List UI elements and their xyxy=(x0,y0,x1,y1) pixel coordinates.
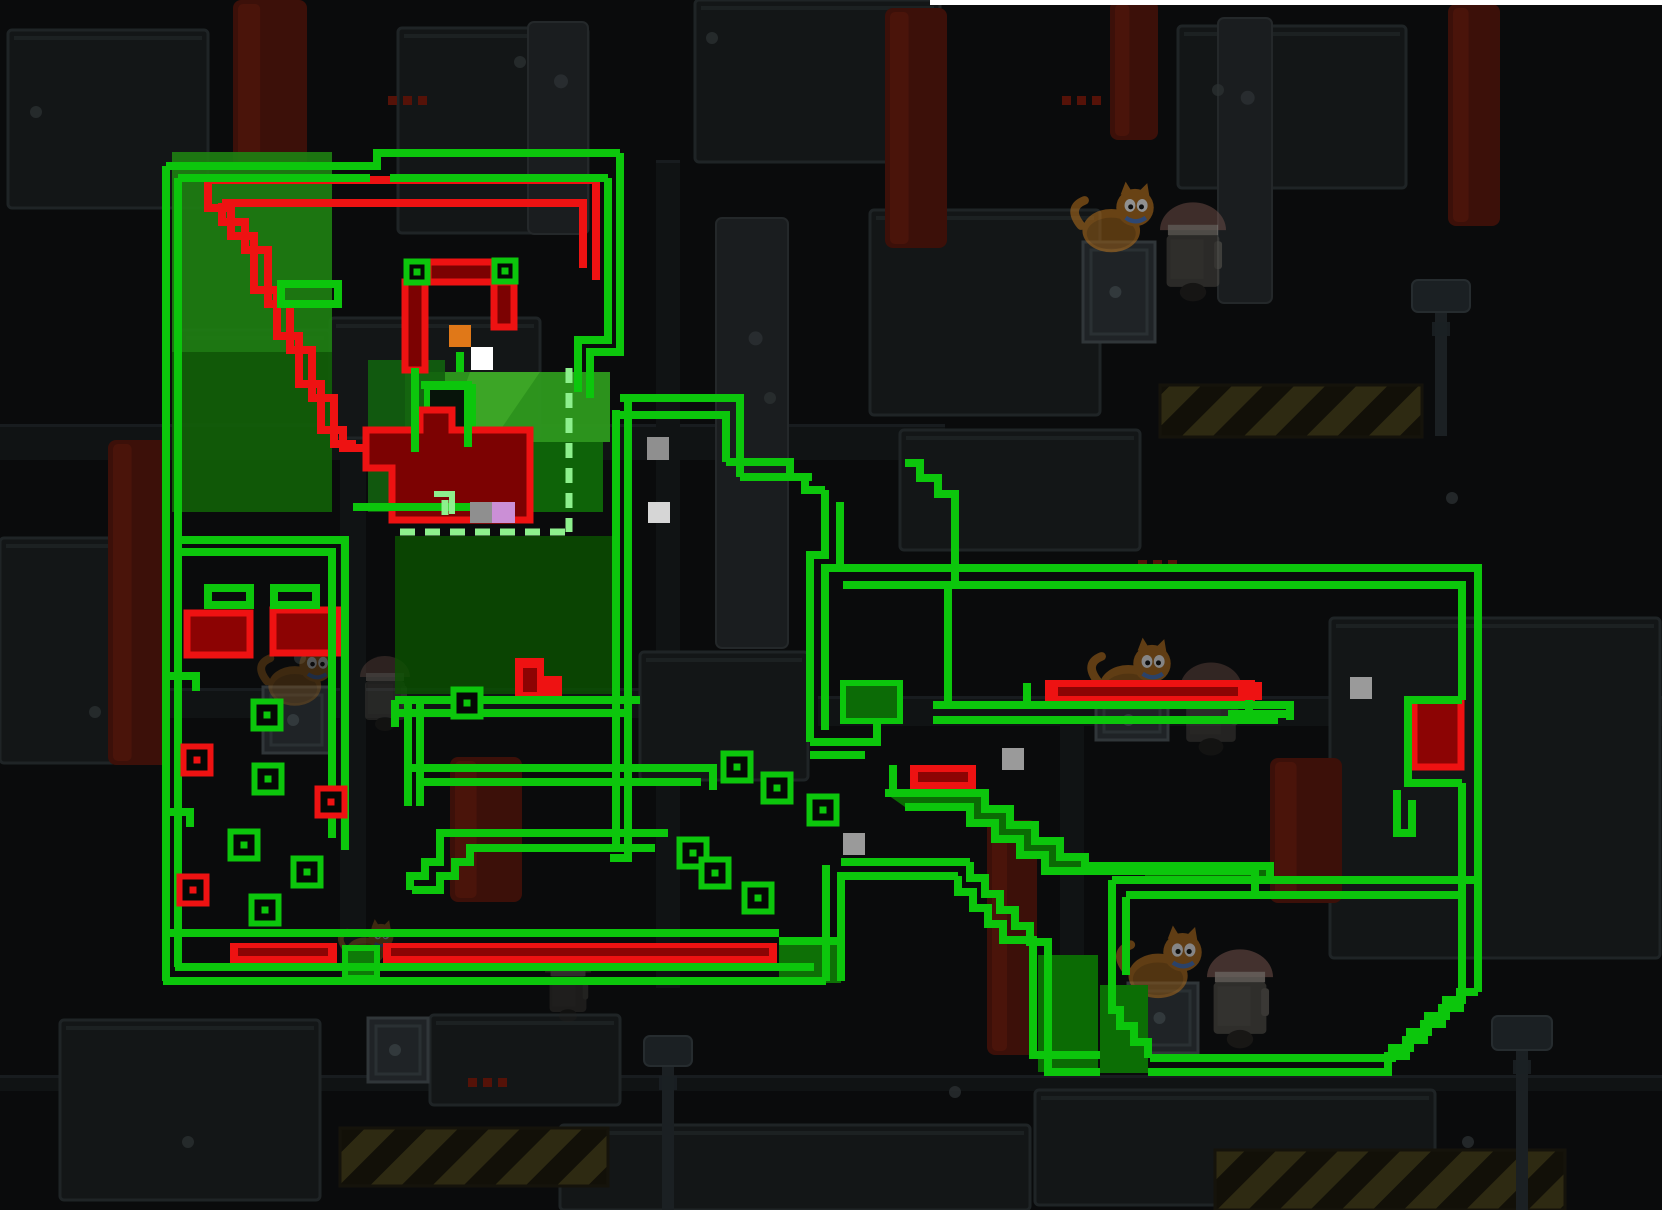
wall-panel-body xyxy=(60,1020,320,1200)
map-node[interactable] xyxy=(702,860,729,887)
map-node[interactable] xyxy=(294,859,321,886)
cat-pupil-right xyxy=(1156,660,1161,665)
map-node-dot-icon xyxy=(712,870,719,877)
map-node[interactable] xyxy=(180,877,207,904)
cat-pupil-left xyxy=(1128,204,1133,209)
wall-panel-highlight xyxy=(66,1026,314,1030)
red-pillar-highlight xyxy=(1115,4,1129,136)
wall-panel-highlight xyxy=(1184,32,1400,36)
marker-gray-block-5[interactable] xyxy=(1350,677,1372,699)
rivet-icon xyxy=(182,1136,194,1148)
wall-panel-highlight xyxy=(1041,1096,1429,1100)
lamp-post-collar xyxy=(1432,322,1450,336)
status-led-icon xyxy=(498,1078,507,1087)
red-pillar xyxy=(885,8,947,248)
robot-wheel xyxy=(1227,1030,1253,1048)
rivet-icon xyxy=(1462,1136,1474,1148)
status-led-icon xyxy=(483,1078,492,1087)
status-led-icon xyxy=(388,96,397,105)
screen-edge-strip xyxy=(930,0,1662,5)
rivet-icon xyxy=(764,392,776,404)
map-node[interactable] xyxy=(254,702,281,729)
map-node[interactable] xyxy=(764,775,791,802)
cat-pupil-right xyxy=(320,662,325,667)
marker-gray-block-3[interactable] xyxy=(843,833,865,855)
girder-beam-body xyxy=(656,160,680,988)
dark-pillar-rivet-icon xyxy=(749,331,763,345)
hazard-box-room-1 xyxy=(187,613,250,655)
rivet-icon xyxy=(1212,84,1224,96)
cat-pupil-right xyxy=(1139,204,1144,209)
red-pillar xyxy=(233,0,307,168)
marker-gray-block-1[interactable] xyxy=(647,437,669,460)
hazard-stripes xyxy=(1160,385,1422,437)
girder-beam-highlight xyxy=(656,160,680,163)
hazard-stripes-body xyxy=(340,1128,608,1186)
lamp-post-head xyxy=(1412,280,1470,312)
map-node-dot-icon xyxy=(190,887,197,894)
safe-box xyxy=(1083,242,1155,342)
map-node-dot-icon xyxy=(262,907,269,914)
robot-wheel xyxy=(1199,738,1224,755)
map-node[interactable] xyxy=(724,754,751,781)
marker-lightgray-block[interactable] xyxy=(648,502,670,523)
map-node[interactable] xyxy=(454,690,481,717)
wall-panel-highlight xyxy=(14,36,202,40)
status-led-icon xyxy=(418,96,427,105)
map-node-dot-icon xyxy=(690,850,697,857)
robot-sprite[interactable] xyxy=(1180,663,1242,756)
map-node[interactable] xyxy=(407,262,428,283)
hazard-block-east xyxy=(1414,700,1461,767)
status-led-icon xyxy=(1077,96,1086,105)
wall-panel-body xyxy=(1178,26,1406,188)
marker-gray-block-4[interactable] xyxy=(1002,748,1024,770)
wall-panel-body xyxy=(1330,618,1660,958)
map-node-dot-icon xyxy=(265,776,272,783)
rivet-icon xyxy=(30,106,42,118)
wall-panel xyxy=(1330,618,1660,958)
hazard-frame-right-bar xyxy=(494,282,514,327)
map-node[interactable] xyxy=(252,897,279,924)
map-node-dot-icon xyxy=(820,807,827,814)
girder-beam xyxy=(656,160,680,988)
hazard-bar-small-core xyxy=(918,772,968,782)
status-led-icon xyxy=(1062,96,1071,105)
safe-box-dial-icon xyxy=(287,714,299,726)
hazard-stripes-body xyxy=(1160,385,1422,437)
hazard-floor-strip-b-core xyxy=(391,948,769,956)
marker-white-block[interactable] xyxy=(471,347,493,370)
map-node[interactable] xyxy=(745,885,772,912)
red-pillar-highlight xyxy=(238,4,260,164)
safe-box-dial-icon xyxy=(1154,1012,1166,1024)
map-node[interactable] xyxy=(231,832,258,859)
map-node-dot-icon xyxy=(755,895,762,902)
lamp-post-head xyxy=(1492,1016,1552,1050)
hazard-frame-left-bar xyxy=(405,282,425,370)
game-viewport[interactable] xyxy=(0,0,1662,1210)
hazard-ledge-L-inner xyxy=(523,668,537,692)
hazard-stripes xyxy=(340,1128,608,1186)
status-led-icon xyxy=(403,96,412,105)
wall-panel-highlight xyxy=(1336,624,1654,628)
filled-zone-under-dashes xyxy=(395,536,620,694)
dark-pillar xyxy=(1218,18,1272,303)
hazard-floor-strip-a-core xyxy=(238,948,328,956)
map-node-dot-icon xyxy=(774,785,781,792)
robot-visor xyxy=(1215,972,1265,983)
wall-panel xyxy=(560,1125,1030,1210)
robot-sprite[interactable] xyxy=(1207,949,1273,1048)
robot-panel xyxy=(368,684,393,714)
dark-pillar-rivet-icon xyxy=(1241,91,1255,105)
red-pillar xyxy=(1448,4,1500,226)
robot-panel xyxy=(1218,986,1251,1026)
rivet-icon xyxy=(89,706,101,718)
marker-orange-block[interactable] xyxy=(449,325,471,347)
wall-panel-highlight xyxy=(646,658,802,662)
map-node-dot-icon xyxy=(328,799,335,806)
rivet-icon xyxy=(514,56,526,68)
map-node-dot-icon xyxy=(264,712,271,719)
map-node-dot-icon xyxy=(241,842,248,849)
wall-panel-highlight xyxy=(566,1131,1024,1135)
rivet-icon xyxy=(949,1086,961,1098)
rivet-icon xyxy=(1446,492,1458,504)
status-led-strip xyxy=(1062,96,1101,105)
rivet-icon xyxy=(706,32,718,44)
map-node-dot-icon xyxy=(304,869,311,876)
lamp-post-collar xyxy=(659,1076,677,1090)
lamp-post-collar xyxy=(1513,1060,1531,1074)
robot-panel xyxy=(1171,239,1204,279)
status-led-strip xyxy=(468,1078,507,1087)
robot-sprite[interactable] xyxy=(1160,202,1226,301)
robot-arm xyxy=(1214,241,1222,269)
wall-panel-highlight xyxy=(436,1021,614,1025)
map-node[interactable] xyxy=(318,789,345,816)
robot-visor xyxy=(1168,225,1218,236)
red-pillar-highlight xyxy=(890,12,909,244)
dark-pillar-rivet-icon xyxy=(554,74,568,88)
red-pillar-highlight xyxy=(1453,8,1469,222)
safe-box-dial-icon xyxy=(389,1044,401,1056)
red-pillar-highlight xyxy=(113,444,132,761)
wall-panel xyxy=(1178,26,1406,188)
wall-panel-body xyxy=(430,1015,620,1105)
hazard-stripes-body xyxy=(1215,1150,1565,1210)
wall-panel xyxy=(430,1015,620,1105)
marker-gray-block-2[interactable] xyxy=(470,502,492,523)
cat-pupil-left xyxy=(1145,660,1150,665)
map-node-dot-icon xyxy=(464,700,471,707)
hazard-cap-post xyxy=(1238,682,1262,700)
robot-arm xyxy=(1261,988,1269,1016)
map-node-dot-icon xyxy=(734,764,741,771)
robot-wheel xyxy=(559,1009,577,1022)
map-node-dot-icon xyxy=(414,269,421,276)
marker-purple-block[interactable] xyxy=(492,502,515,523)
map-node[interactable] xyxy=(495,261,516,282)
hazard-bar-right-wing-core xyxy=(1058,687,1240,696)
map-node-dot-icon xyxy=(194,757,201,764)
wall-panel xyxy=(60,1020,320,1200)
red-pillar xyxy=(1110,0,1158,140)
dark-pillar-body xyxy=(1218,18,1272,303)
map-node-dot-icon xyxy=(502,268,509,275)
hazard-frame-top-bar xyxy=(428,262,494,282)
status-led-strip xyxy=(388,96,427,105)
safe-box-dial-icon xyxy=(1109,286,1121,298)
cat-pupil-left xyxy=(1175,949,1180,954)
red-pillar xyxy=(108,440,170,765)
filled-zone-ledge-box xyxy=(843,683,900,721)
wall-panel-body xyxy=(560,1125,1030,1210)
map-node[interactable] xyxy=(255,766,282,793)
lamp-post-head xyxy=(644,1036,692,1066)
hazard-stripes xyxy=(1215,1150,1565,1210)
wall-panel-highlight xyxy=(906,436,1134,440)
level-map-canvas[interactable] xyxy=(0,0,1662,1210)
safe-box xyxy=(368,1018,428,1082)
map-node[interactable] xyxy=(810,797,837,824)
map-node[interactable] xyxy=(184,747,211,774)
status-led-icon xyxy=(468,1078,477,1087)
robot-wheel xyxy=(1180,283,1206,301)
cat-pupil-right xyxy=(1187,949,1192,954)
cat-pupil-left xyxy=(310,662,315,667)
status-led-icon xyxy=(1092,96,1101,105)
